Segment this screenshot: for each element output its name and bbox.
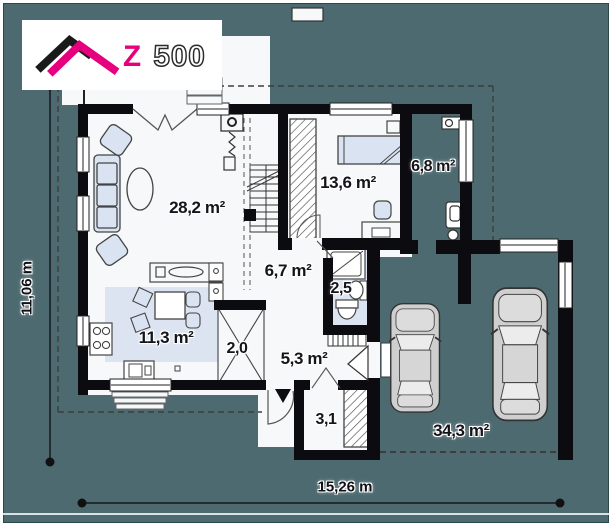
logo-text: Z 500 [123,33,222,77]
bedroom-wardrobe [290,119,316,245]
boiler-room-door [418,240,436,254]
pantry-area-label: 2,0 [226,340,247,358]
frame-line [3,513,611,515]
logo: Z 500 [22,20,222,90]
entry-hall-area-label: 5,3 m² [281,349,328,369]
car [491,288,549,420]
chimney [292,8,323,21]
logo-z: Z [123,40,142,73]
chair [186,313,200,328]
stove [90,323,112,355]
width-dimension-label: 15,26 m [317,479,372,496]
sofa [94,155,120,232]
chair [186,292,200,307]
wc-sink [349,281,367,300]
svg-text:Z 500: Z 500 [123,40,206,73]
bedroom-area-label: 13,6 m² [320,173,376,193]
height-dimension-label: 11,06 m [19,261,36,315]
garage-area-label: 34,3 m² [433,421,489,441]
desk-chair [374,201,391,219]
boiler-room-area-label: 6,8 m² [411,158,455,176]
coffee-table [127,168,153,210]
entry-wardrobe [344,385,368,447]
nightstand [387,121,400,133]
z500-roof-icon [32,32,123,78]
hall-area-label: 6,7 m² [265,261,312,281]
car [389,304,441,412]
living-room-area-label: 28,2 m² [169,198,225,218]
kitchen-area-label: 11,3 m² [139,328,194,348]
wardrobe-area-label: 3,1 [315,411,336,429]
floor-plan-canvas: Z 500 28,2 m² 13,6 m² 6,8 m² 6,7 m² 2,5 … [0,0,614,528]
wc-area-label: 2,5 [330,280,351,298]
logo-500: 500 [153,40,205,73]
